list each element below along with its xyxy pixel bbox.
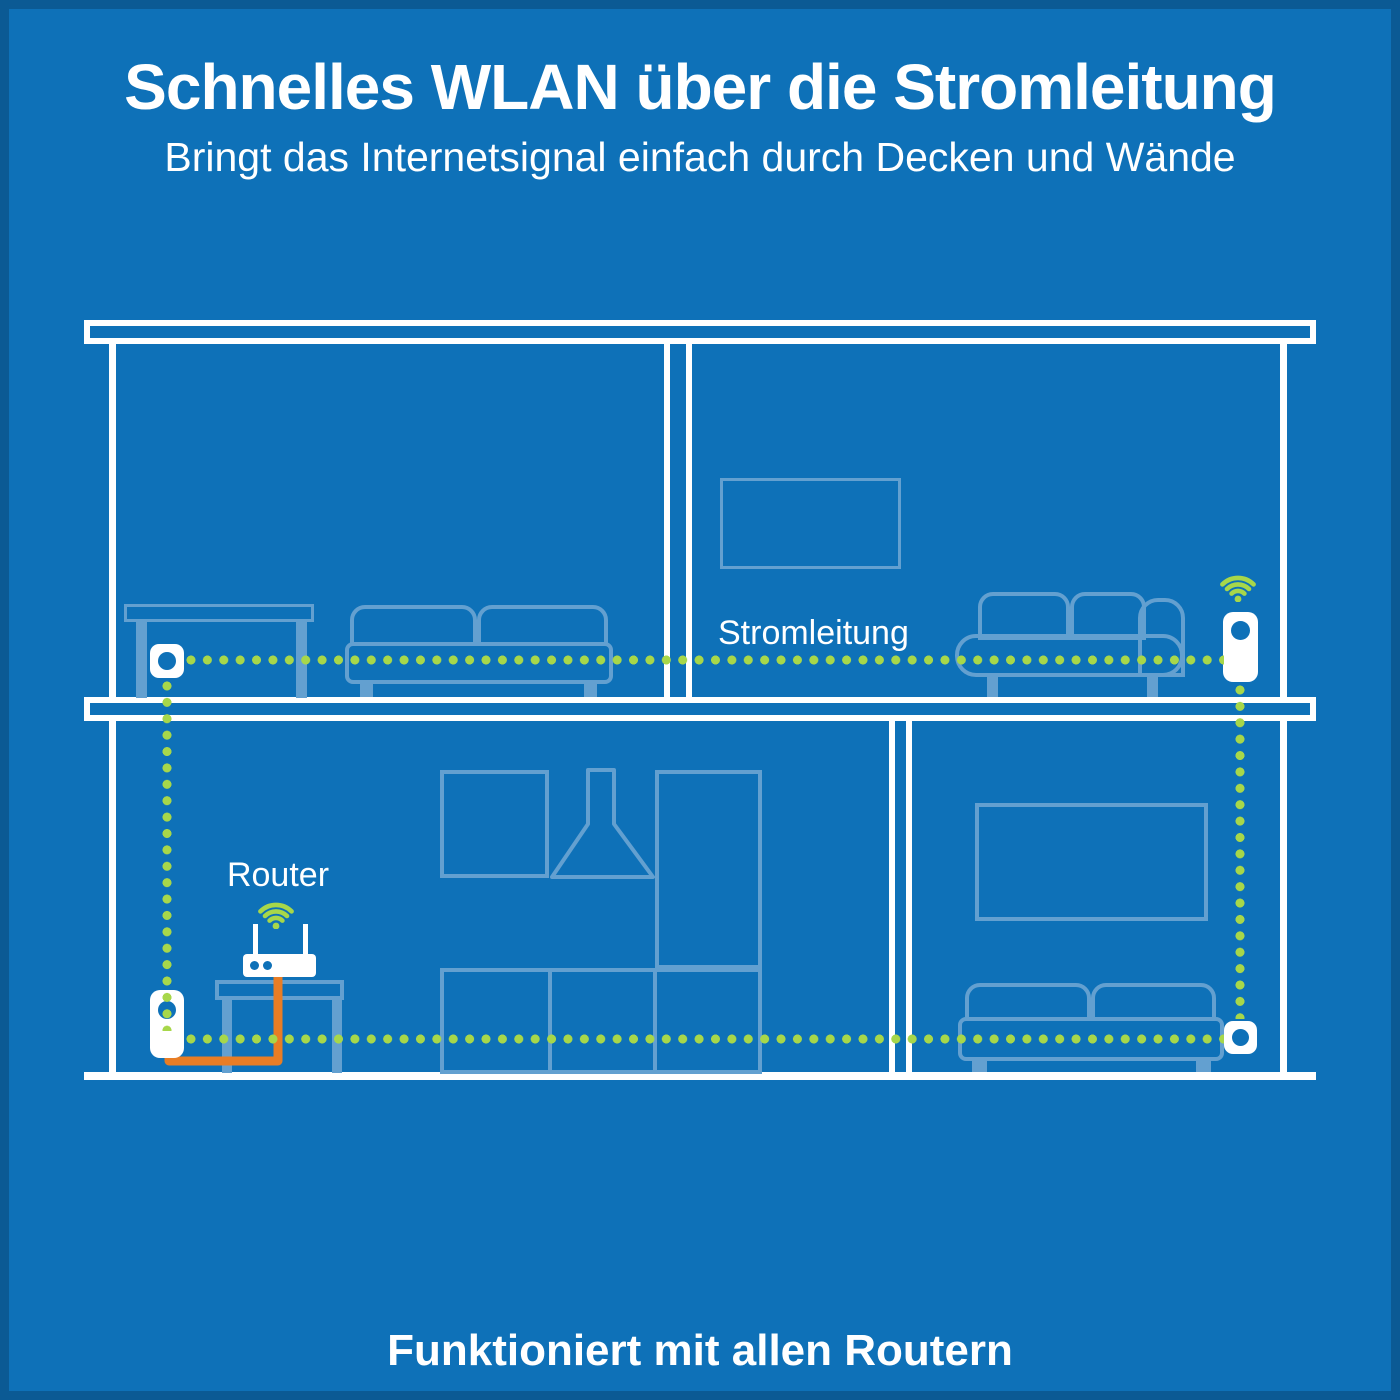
kitchen-hood [545,763,660,883]
router-label: Router [227,856,329,895]
wall-upper-left [109,344,116,697]
wall-upper-middle-a [664,344,670,697]
powerline-route-upper [186,655,1224,665]
sofa-upper-right-leg-right [1147,676,1158,697]
page-subtitle: Bringt das Internetsignal einfach durch … [0,134,1400,181]
powerline-adapter-upper [1223,612,1258,682]
sofa-upper-left-cushion-left [350,605,477,646]
router-device [243,954,316,977]
powerline-label: Stromleitung [718,614,909,653]
powerline-route-right-vertical [1235,685,1245,1019]
desk-top [124,604,314,622]
floor-slab [84,697,1316,721]
wall-lower-middle-b [906,721,912,1072]
sofa-lower-right-cushion-right [1091,983,1216,1021]
wall-lower-right [1280,721,1287,1072]
kitchen-upper-cabinet [440,770,549,878]
power-socket-lower-right [1224,1021,1257,1054]
router-led [263,961,272,970]
kitchen-lower-cabinets [440,968,762,1074]
page-title: Schnelles WLAN über die Stromleitung [0,50,1400,124]
sofa-lower-right-cushion-left [965,983,1091,1021]
wall-lower-left [109,721,116,1072]
kitchen-tall-cabinet [655,770,762,969]
powerline-route-left-vertical [162,681,172,1031]
sofa-upper-left-leg-right [584,683,597,697]
wall-lower-middle-a [889,721,895,1072]
sofa-lower-right-leg-right [1196,1060,1211,1072]
router-antenna-right [303,924,308,956]
wall-upper-middle-b [686,344,692,697]
sofa-lower-right-leg-left [972,1060,987,1072]
tv-upper [720,478,901,569]
sofa-upper-left-cushion-right [477,605,608,646]
roof-slab [84,320,1316,344]
sofa-upper-right-cushion-left [978,592,1070,640]
sofa-upper-right-leg-left [987,676,998,697]
sofa-upper-right-cushion-right [1070,592,1146,640]
wifi-icon [252,893,300,929]
power-socket-upper-left [150,644,184,678]
footer-text: Funktioniert mit allen Routern [0,1326,1400,1376]
wifi-icon [1214,566,1262,602]
desk-leg-left [136,621,147,698]
powerline-infographic: Schnelles WLAN über die Stromleitung Bri… [0,0,1400,1400]
tv-lower [975,803,1208,921]
kitchen-cabinet-divider-right [653,970,657,1072]
kitchen-cabinet-divider-left [548,970,552,1072]
wall-upper-right [1280,344,1287,697]
router-led [250,961,259,970]
router-table-top [215,980,344,1000]
sofa-upper-left-leg-left [360,683,373,697]
powerline-route-lower [186,1034,1224,1044]
